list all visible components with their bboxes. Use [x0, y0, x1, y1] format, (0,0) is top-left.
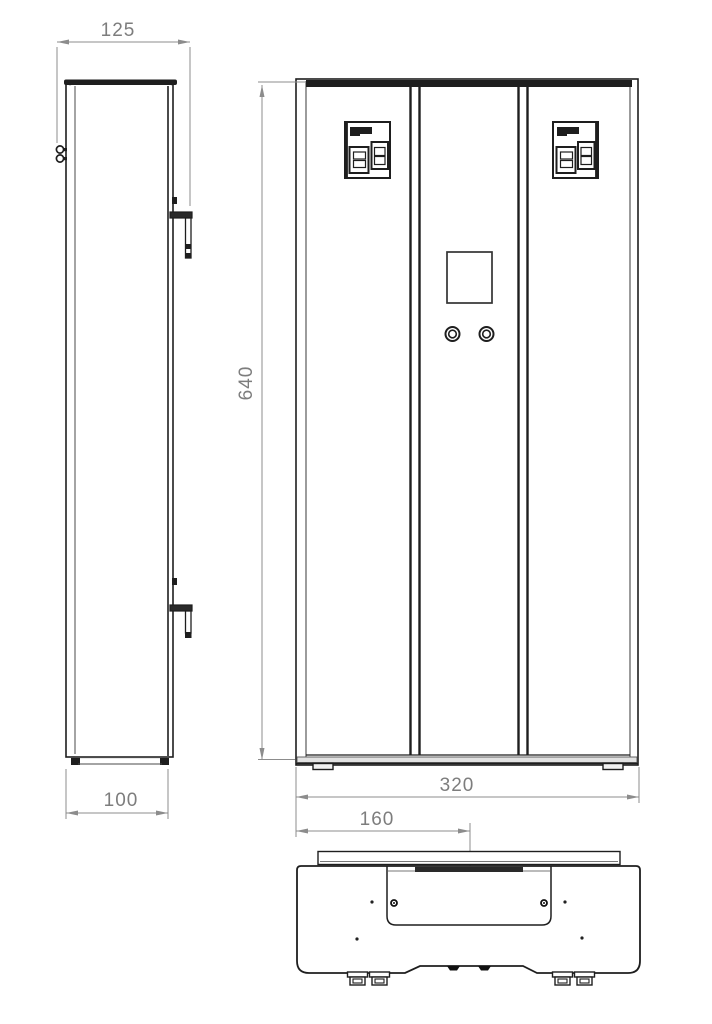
arrow-left	[296, 795, 308, 800]
bottom-view	[297, 852, 640, 986]
front-body-outline	[296, 79, 638, 765]
knob-inner-ring	[449, 330, 457, 338]
bottom-body-outline	[297, 866, 640, 973]
arrow-left	[57, 40, 69, 45]
control-box-label	[350, 127, 372, 134]
bracket-arm	[170, 605, 192, 611]
dim-width: 320	[296, 767, 639, 837]
technical-drawing-canvas: 125 100	[0, 0, 712, 1024]
gland-body	[577, 977, 592, 985]
gland-body	[555, 977, 570, 985]
screw-dot	[563, 900, 566, 903]
control-knob-right	[480, 327, 494, 341]
display-panel	[447, 252, 492, 303]
side-top-cap-knob-left	[67, 80, 73, 86]
arrow-right	[178, 40, 190, 45]
front-control-box-right	[553, 122, 598, 178]
hinge-screw-head	[56, 146, 63, 153]
dim-label-320: 320	[440, 775, 475, 796]
edge-tab	[478, 966, 491, 971]
screw-dot	[580, 936, 583, 939]
cable-glands	[348, 972, 595, 985]
mount-hole-center	[393, 902, 395, 904]
arrow-right	[458, 829, 470, 834]
arrow-right	[156, 811, 168, 816]
bracket-arm	[170, 212, 192, 218]
cable-gland	[575, 972, 595, 985]
hinge-screw-head	[56, 155, 63, 162]
bracket-foot	[185, 253, 192, 259]
screw-dot	[370, 900, 373, 903]
gland-flange	[553, 972, 573, 977]
bracket-leg	[186, 611, 192, 633]
front-foot-right	[603, 764, 623, 770]
dim-height: 640	[236, 82, 305, 760]
control-box-label-tail	[557, 134, 567, 136]
control-box-label-tail	[350, 134, 360, 136]
arrow-top	[260, 85, 265, 97]
gland-flange	[575, 972, 595, 977]
bracket-nub	[172, 578, 177, 585]
side-view	[56, 80, 192, 766]
side-top-cap-knob-right	[169, 80, 175, 86]
front-view	[296, 79, 638, 770]
front-top-bar	[306, 80, 632, 87]
back-plate	[318, 852, 620, 865]
side-body-outline	[66, 81, 173, 757]
gland-body	[350, 977, 365, 985]
bracket-foot	[185, 632, 192, 638]
dim-depth-body: 100	[66, 769, 168, 819]
bracket-clip	[185, 244, 192, 249]
cable-gland	[370, 972, 390, 985]
gland-flange	[348, 972, 368, 977]
screw-dot	[355, 937, 358, 940]
bottom-strip	[297, 757, 637, 763]
front-bottom	[296, 755, 638, 770]
control-knob-left	[446, 327, 460, 341]
cable-gland	[348, 972, 368, 985]
front-foot-left	[313, 764, 333, 770]
front-control-box-left	[345, 122, 390, 178]
dim-label-125: 125	[101, 20, 136, 41]
bracket-nub	[172, 197, 177, 204]
dim-label-640: 640	[236, 366, 257, 401]
gland-flange	[370, 972, 390, 977]
arrow-right	[627, 795, 639, 800]
bracket-leg	[186, 218, 192, 258]
mount-hole-center	[543, 902, 545, 904]
gland-body	[372, 977, 387, 985]
side-top-cap	[64, 80, 177, 86]
control-box-label	[557, 127, 579, 134]
cable-gland	[553, 972, 573, 985]
recess-top-bar	[415, 867, 523, 872]
drawing-svg: 125 100	[0, 0, 712, 1024]
side-base	[71, 758, 169, 766]
edge-tab	[447, 966, 460, 971]
arrow-bottom	[260, 748, 265, 760]
knob-inner-ring	[483, 330, 491, 338]
dim-label-160: 160	[360, 809, 395, 830]
arrow-left	[296, 829, 308, 834]
dim-label-100: 100	[104, 790, 139, 811]
arrow-left	[66, 811, 78, 816]
